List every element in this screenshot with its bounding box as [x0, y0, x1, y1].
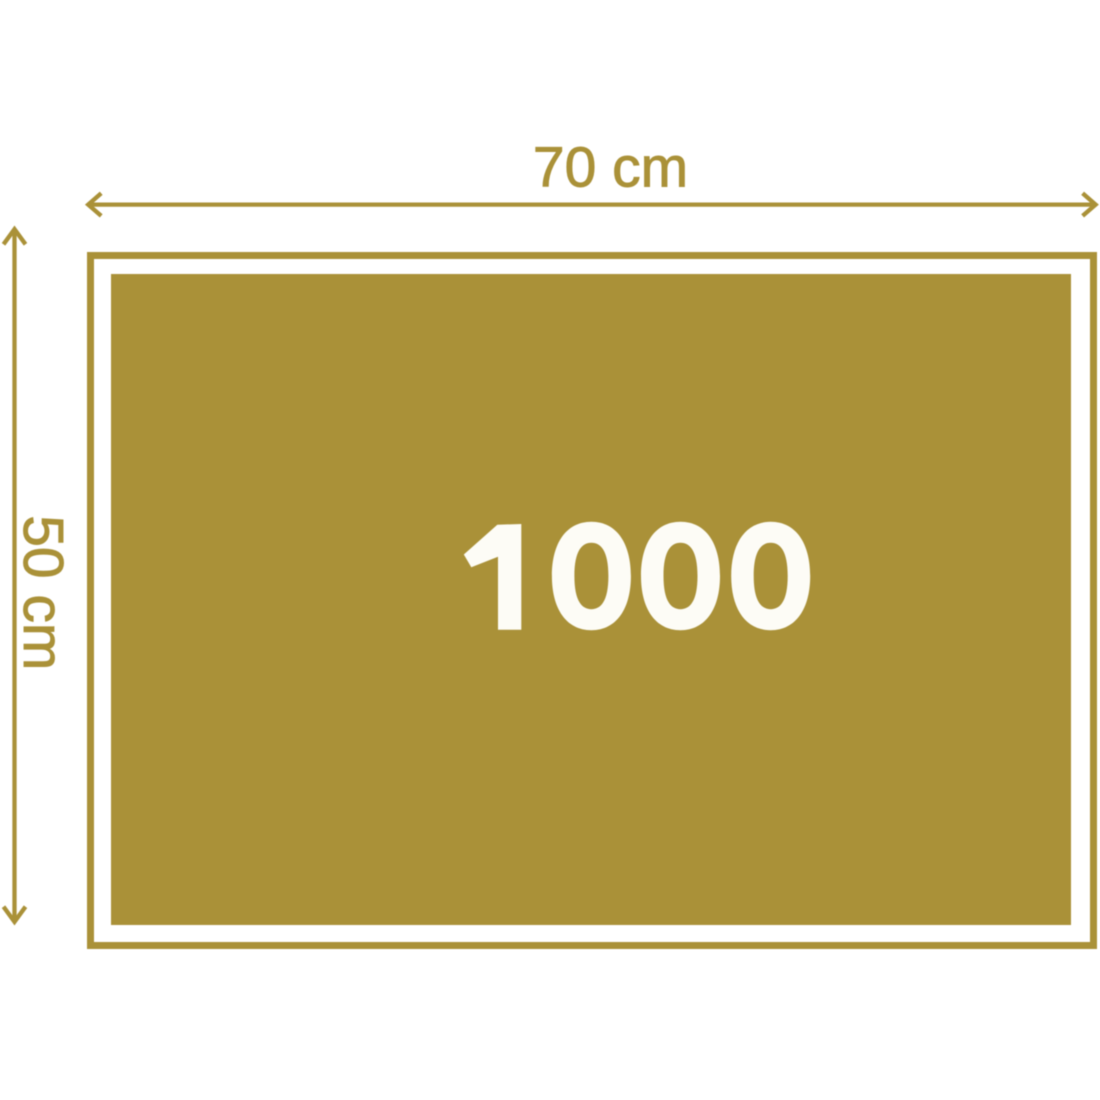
- svg-text:70 cm: 70 cm: [533, 136, 688, 200]
- svg-text:50 cm: 50 cm: [11, 515, 75, 670]
